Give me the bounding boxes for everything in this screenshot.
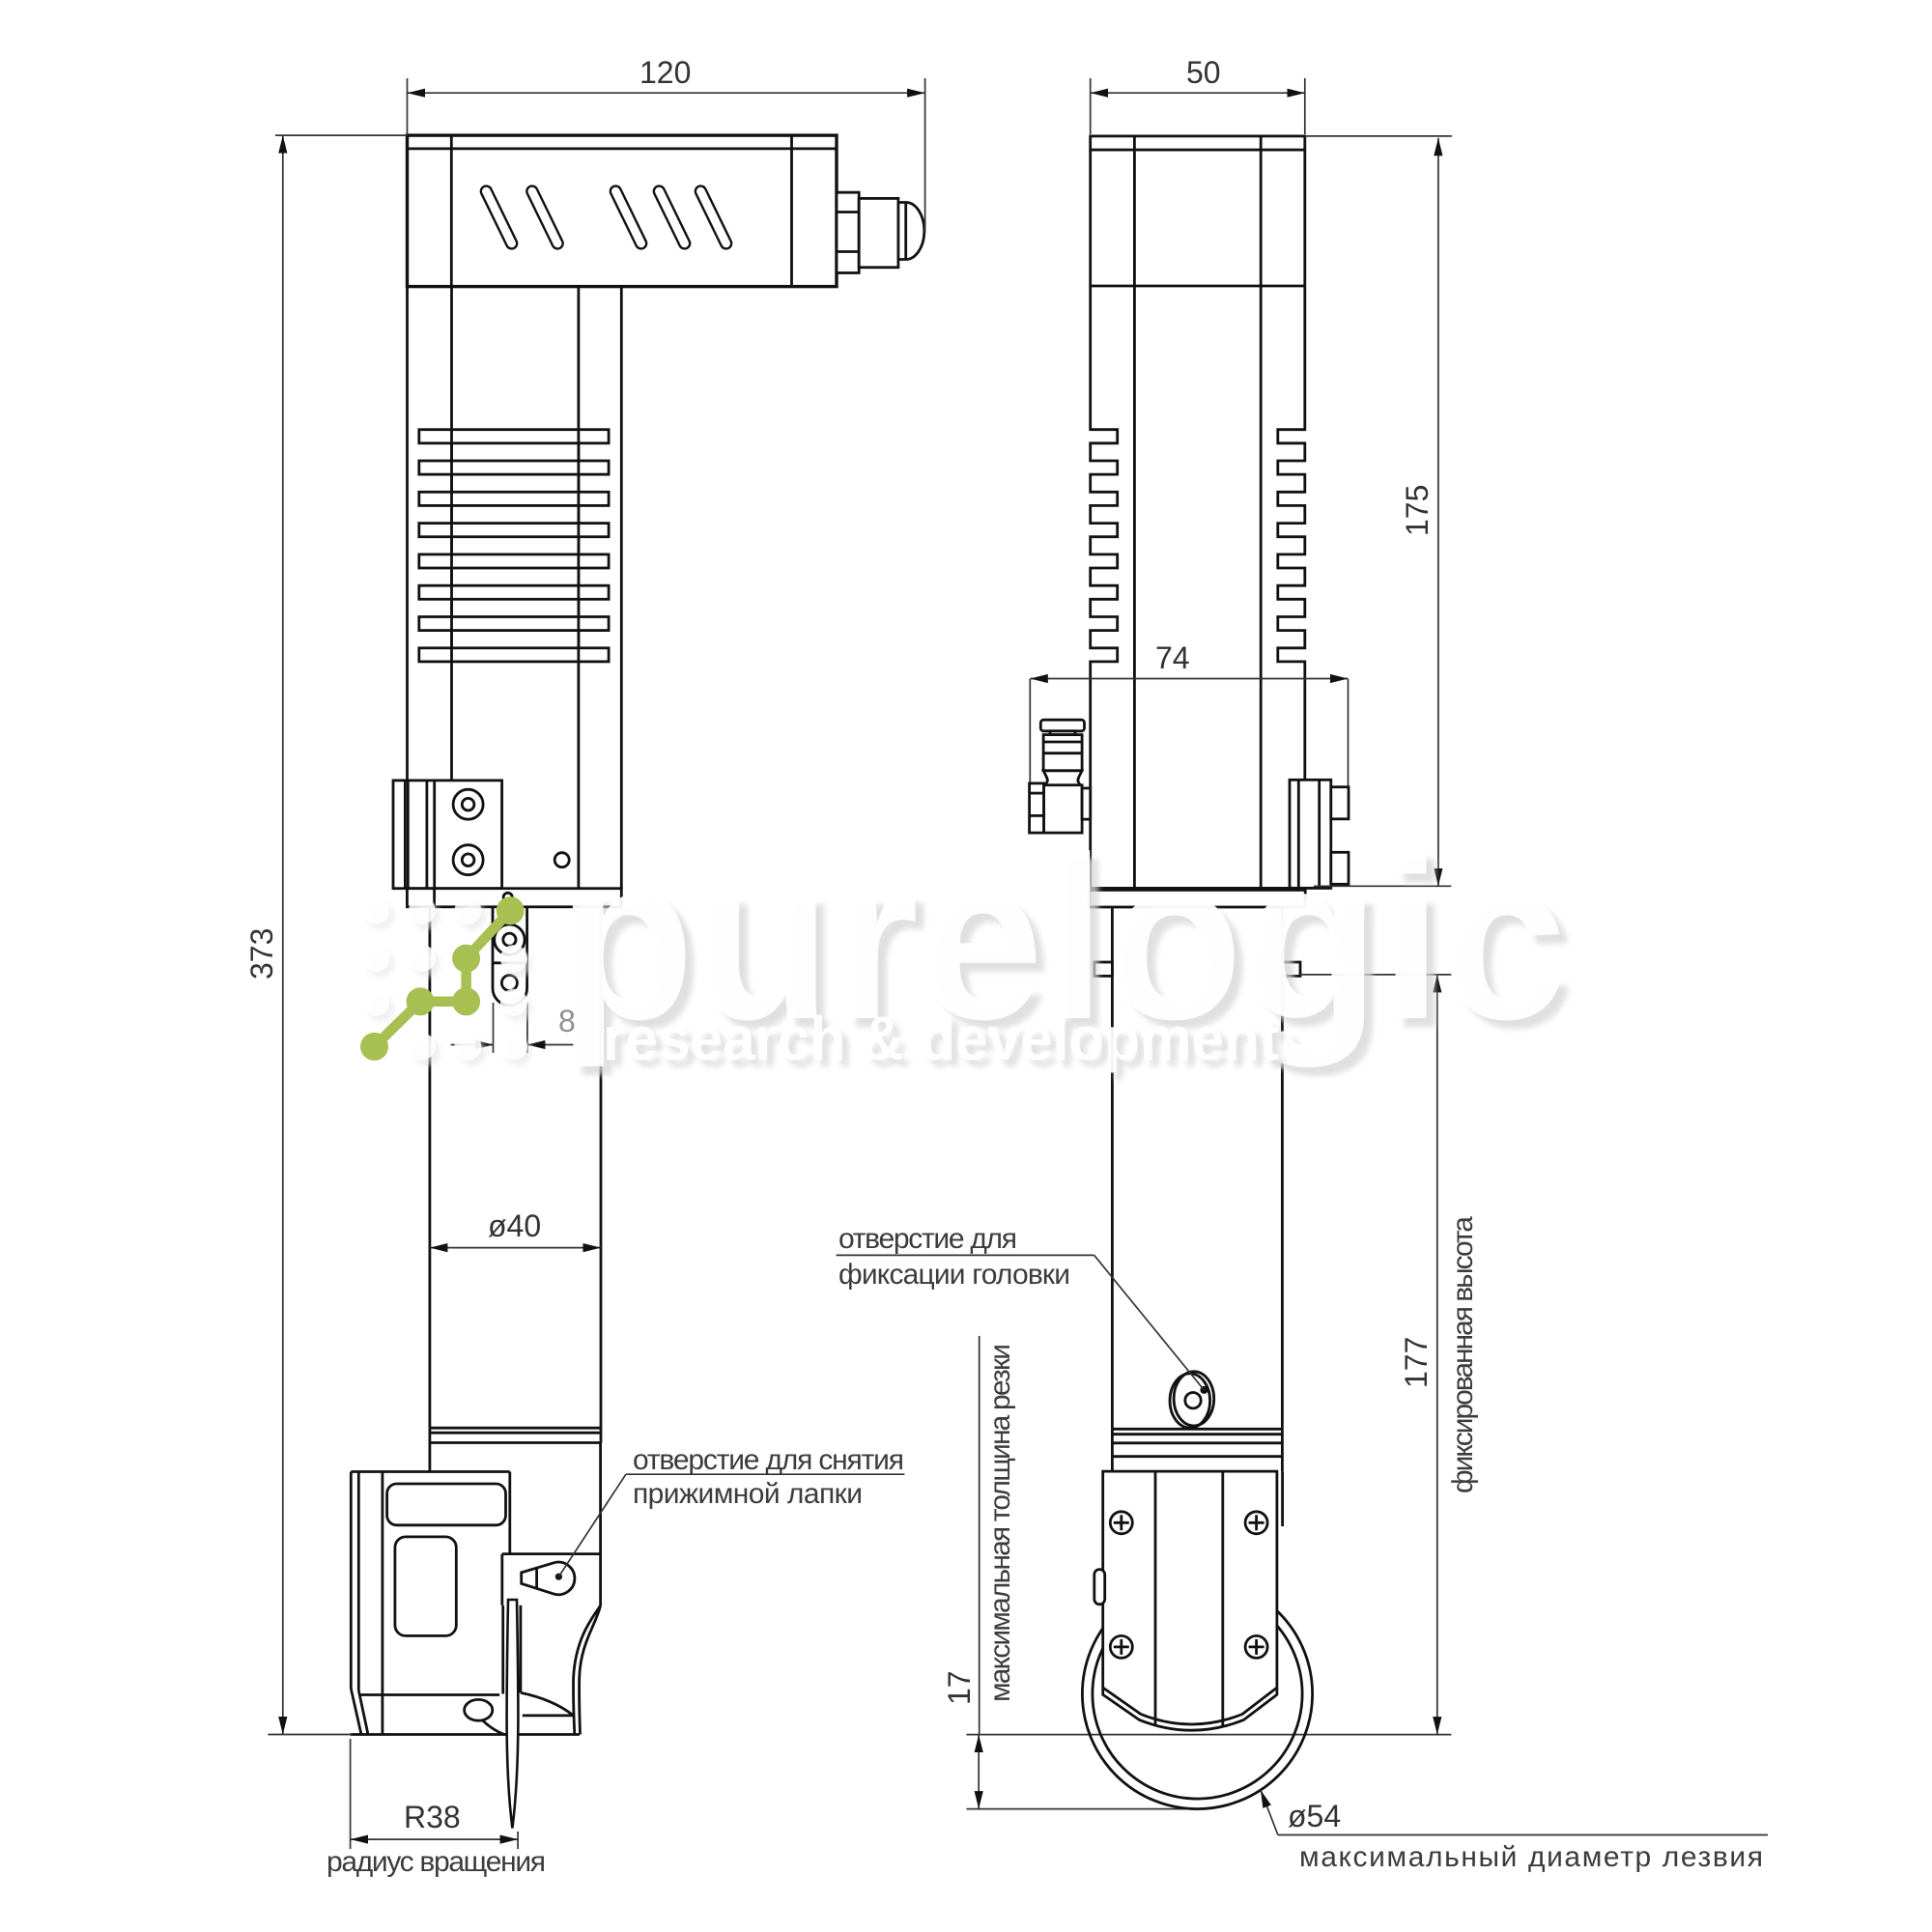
svg-text:отверстие для: отверстие для xyxy=(838,1223,1017,1255)
svg-text:фиксации головки: фиксации головки xyxy=(838,1259,1070,1291)
svg-text:R38: R38 xyxy=(404,1800,461,1834)
svg-text:74: 74 xyxy=(1155,640,1190,675)
svg-text:максимальный диаметр лезвия: максимальный диаметр лезвия xyxy=(1299,1841,1763,1873)
svg-text:175: 175 xyxy=(1400,485,1435,536)
svg-text:17: 17 xyxy=(942,1670,977,1705)
svg-text:максимальная толщина резки: максимальная толщина резки xyxy=(984,1344,1016,1702)
svg-text:research & development: research & development xyxy=(603,1004,1279,1073)
svg-text:отверстие для снятия: отверстие для снятия xyxy=(633,1444,904,1476)
svg-text:ø40: ø40 xyxy=(488,1208,541,1243)
svg-text:фиксированная высота: фиксированная высота xyxy=(1447,1216,1479,1493)
svg-text:ø54: ø54 xyxy=(1288,1799,1341,1833)
svg-text:373: 373 xyxy=(244,928,279,980)
svg-text:50: 50 xyxy=(1186,55,1221,90)
svg-text:8: 8 xyxy=(558,1004,576,1038)
svg-text:120: 120 xyxy=(639,55,691,90)
svg-text:радиус вращения: радиус вращения xyxy=(327,1846,546,1878)
svg-text:прижимной лапки: прижимной лапки xyxy=(633,1478,863,1510)
svg-text:177: 177 xyxy=(1399,1337,1434,1388)
